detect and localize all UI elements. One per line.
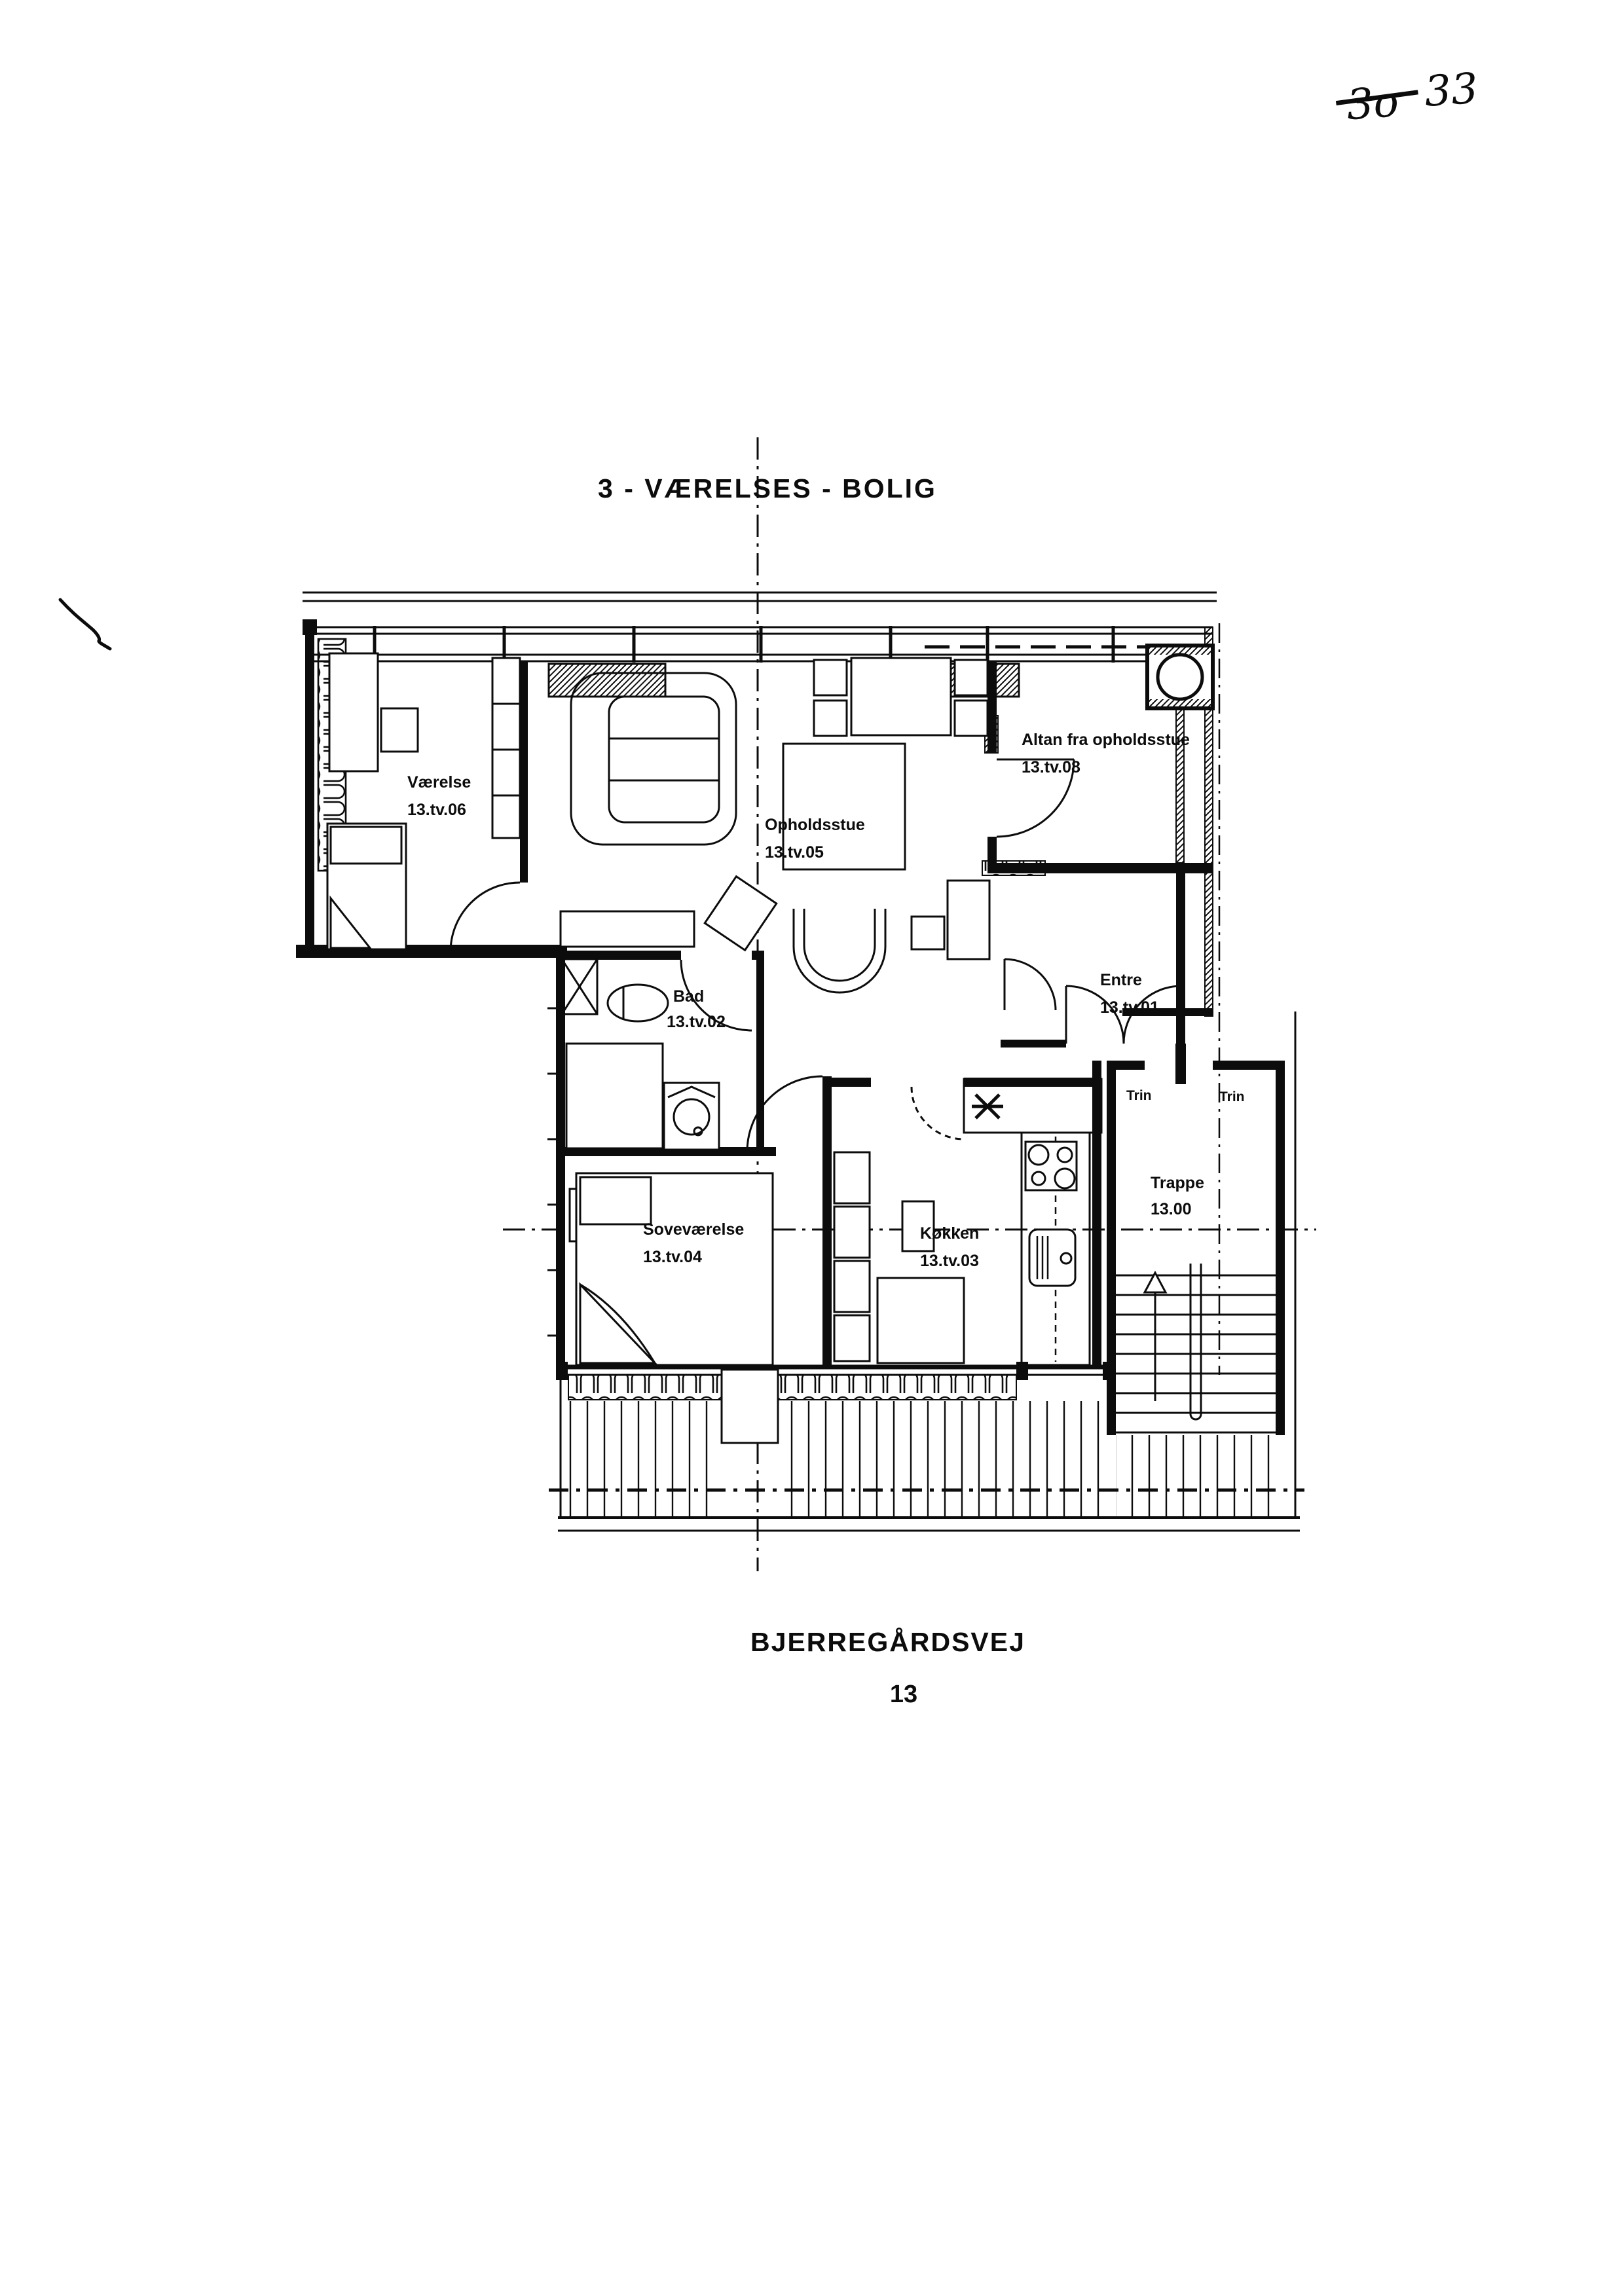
wall-tick-marks (547, 1008, 557, 1336)
entry-door-leaf (1175, 1044, 1186, 1084)
svg-text:Trappe: Trappe (1151, 1174, 1204, 1192)
stove-icon (1025, 1142, 1077, 1190)
closet-icon (492, 658, 520, 838)
window-sill-scallop (568, 1375, 724, 1400)
stair-stringer (1190, 1264, 1201, 1419)
floor-plan-drawing: 3o 33 3 - VÆRELSES - BOLIG (0, 0, 1624, 2296)
handwritten-struck-number: 3o (1345, 78, 1400, 130)
window-mullions (375, 626, 1113, 663)
single-bed-icon (327, 824, 406, 949)
door-arc-dashed (912, 1087, 964, 1139)
entre-furniture (912, 881, 989, 959)
shower-icon (562, 959, 597, 1014)
stair-direction-arrow (1145, 1273, 1166, 1401)
washing-machine-icon (664, 1083, 719, 1150)
dresser-icon (948, 881, 989, 959)
ventilation-shaft-icon (1147, 646, 1213, 863)
street-name: BJERREGÅRDSVEJ (750, 1627, 1025, 1657)
radiator-icon (549, 664, 665, 697)
scanned-floorplan-page: 3o 33 3 - VÆRELSES - BOLIG (0, 0, 1624, 2296)
balcony-window-sill (982, 861, 1045, 875)
room-vaerelse-furniture (318, 639, 520, 949)
armchair-icon (794, 909, 885, 993)
kitchen-fixtures (834, 1079, 1101, 1365)
deck-hatching (778, 1401, 1107, 1518)
deck-hatching (1116, 1435, 1276, 1518)
svg-text:13.tv.05: 13.tv.05 (765, 843, 824, 862)
kitchen-counter (964, 1079, 1101, 1365)
desk-icon (329, 653, 378, 771)
chair-icon (705, 877, 776, 951)
room-label-entre: Entre 13.tv.01 (1100, 971, 1159, 1017)
room-label-bad: Bad 13.tv.02 (667, 987, 726, 1031)
step-label-left: Trin (1126, 1088, 1152, 1103)
sofa-icon (571, 673, 736, 845)
svg-text:13.tv.03: 13.tv.03 (920, 1252, 979, 1270)
sideboard-icon (561, 911, 694, 947)
room-label-trappe: Trappe 13.00 (1151, 1174, 1204, 1218)
svg-text:13.00: 13.00 (1151, 1200, 1192, 1218)
svg-text:13.tv.01: 13.tv.01 (1100, 998, 1159, 1017)
sink-icon (1029, 1230, 1075, 1286)
svg-text:Opholdsstue: Opholdsstue (765, 816, 865, 834)
stool-icon (912, 917, 944, 949)
svg-text:13.tv.06: 13.tv.06 (407, 801, 466, 819)
svg-text:13.tv.04: 13.tv.04 (643, 1248, 702, 1266)
svg-text:13.tv.02: 13.tv.02 (667, 1013, 726, 1031)
staircase (1116, 1264, 1276, 1432)
window-wall-top (303, 592, 1217, 697)
svg-text:Værelse: Værelse (407, 773, 471, 792)
deck-hatching (562, 1401, 722, 1518)
double-bed-icon (576, 1173, 773, 1365)
svg-text:Soveværelse: Soveværelse (643, 1220, 744, 1239)
svg-text:13.tv.08: 13.tv.08 (1022, 758, 1080, 776)
refrigerator-symbol-icon (972, 1095, 1003, 1118)
room-label-altan: Altan fra opholdsstue 13.tv.08 (1022, 731, 1190, 776)
kitchen-table-icon (877, 1278, 964, 1363)
stair-steps (1116, 1275, 1276, 1432)
svg-text:Entre: Entre (1100, 971, 1142, 989)
pillar (722, 1370, 778, 1443)
handwritten-note: 3o 33 (1334, 65, 1480, 131)
street-number: 13 (890, 1681, 917, 1708)
svg-text:Køkken: Køkken (920, 1224, 979, 1243)
door-arc (451, 883, 520, 952)
pen-scratch-artifact (60, 600, 110, 649)
window-sill-scallop (776, 1375, 1016, 1400)
handwritten-number: 33 (1423, 65, 1479, 117)
svg-text:Altan fra opholdsstue: Altan fra opholdsstue (1022, 731, 1190, 749)
chair-icon (381, 708, 418, 752)
hallway-door (1005, 959, 1056, 1010)
svg-text:Bad: Bad (673, 987, 704, 1006)
step-label-right: Trin (1219, 1089, 1245, 1104)
room-label-vaerelse: Værelse 13.tv.06 (407, 773, 471, 819)
bedroom-furniture (570, 1173, 773, 1365)
vanity-icon (566, 1044, 663, 1148)
toilet-icon (608, 985, 668, 1021)
tall-cabinets-icon (834, 1152, 870, 1361)
drawing-title: 3 - VÆRELSES - BOLIG (598, 473, 937, 503)
